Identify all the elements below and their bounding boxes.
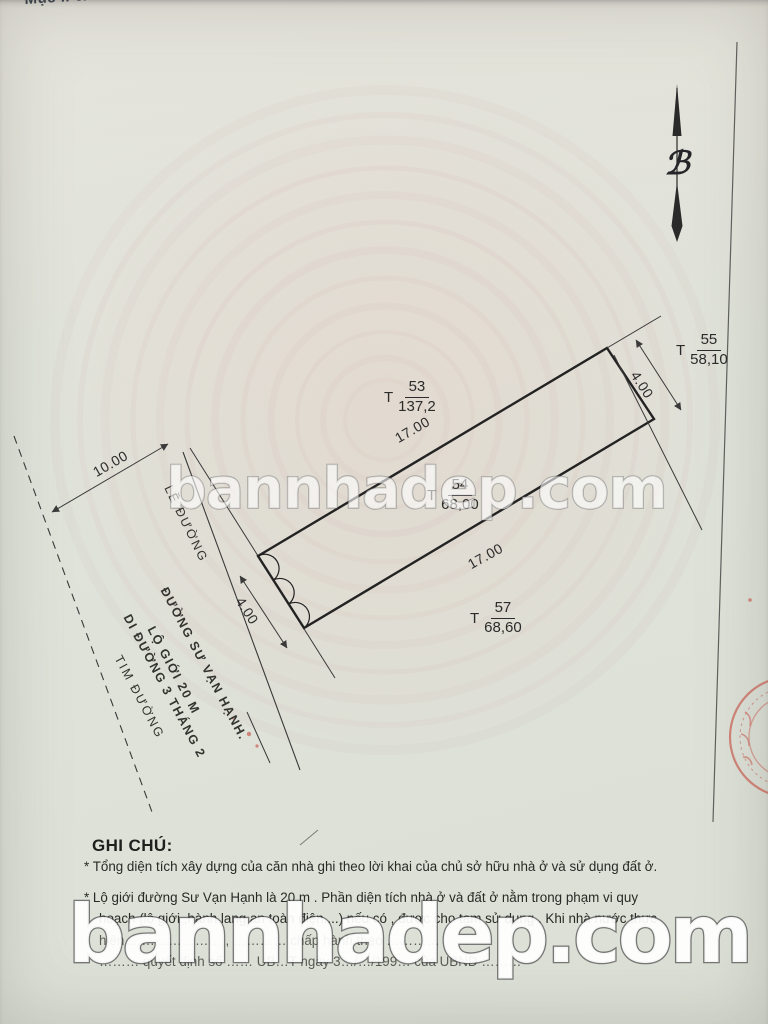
watermark-layer: bannhadep.com bannhadep.com	[0, 0, 768, 1024]
scanned-cadastral-document: ℬ Mục II c/ Số 3 10.00 17.00 17.00 4.00 …	[0, 0, 768, 1024]
watermark-bottom: bannhadep.com	[68, 888, 750, 981]
watermark-mid: bannhadep.com	[166, 456, 667, 522]
